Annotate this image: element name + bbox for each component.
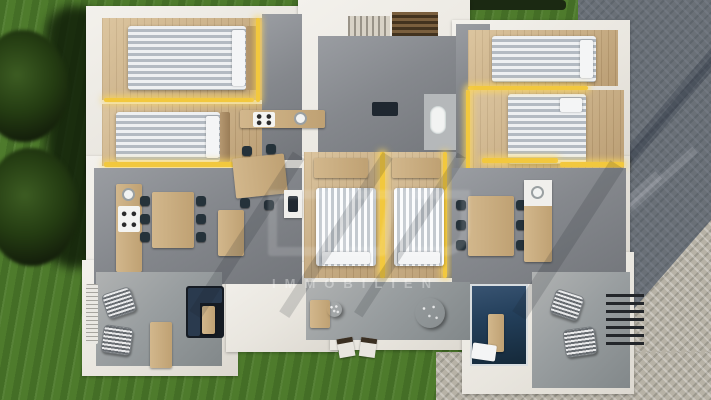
accent-wall xyxy=(104,98,254,102)
potted-plant xyxy=(327,302,342,317)
kitchen-sink xyxy=(531,186,544,199)
bed xyxy=(116,112,220,162)
bedroom-bench xyxy=(314,158,368,178)
accent-wall xyxy=(104,162,244,167)
slatted-wall xyxy=(348,16,390,38)
pergola-slat-shadow xyxy=(606,294,644,350)
kitchen-sink xyxy=(122,188,135,201)
dining-chair xyxy=(140,214,150,224)
potted-plant xyxy=(415,298,445,328)
bedroom-bench xyxy=(392,158,440,178)
pool-towel xyxy=(471,342,497,361)
louvered-shutter xyxy=(86,284,98,344)
watermark-logo-glyph xyxy=(268,190,330,256)
dining-chair xyxy=(266,144,276,154)
dining-chair xyxy=(140,196,150,206)
bed-pillows xyxy=(232,30,245,86)
bed-pillows xyxy=(580,40,593,78)
accent-wall xyxy=(468,86,588,90)
bathtub xyxy=(430,106,446,134)
wicker-lounge-chair xyxy=(100,324,134,356)
door-mat xyxy=(310,300,330,328)
hallway-floor xyxy=(262,14,302,160)
dining-table xyxy=(468,196,514,256)
watermark-text: IMMOBILIEN xyxy=(245,276,467,291)
dining-chair xyxy=(140,232,150,242)
dining-chair xyxy=(242,146,252,156)
floorplan-render: IMMOBILIEN xyxy=(0,0,711,400)
cooktop xyxy=(253,112,275,127)
wood-deck-strip xyxy=(150,322,172,368)
bed xyxy=(128,26,246,90)
dining-chair xyxy=(196,232,206,242)
watermark-logo-glyph xyxy=(336,190,398,256)
watermark-logo-glyph xyxy=(404,190,470,256)
accent-wall xyxy=(466,90,470,170)
kitchen-sink xyxy=(294,112,307,125)
watermark-logo xyxy=(268,190,470,256)
dining-chair xyxy=(196,196,206,206)
bed-pillows xyxy=(206,116,219,158)
wicker-lounge-chair xyxy=(562,326,598,358)
dining-chair xyxy=(240,198,250,208)
bed-pillows xyxy=(560,98,582,112)
cooktop xyxy=(118,206,140,232)
kitchen-appliance xyxy=(372,102,398,116)
dining-chair xyxy=(196,214,206,224)
bed-headboard xyxy=(220,112,230,162)
garden-step xyxy=(336,337,355,358)
dining-table xyxy=(152,192,194,248)
accent-wall xyxy=(482,158,558,163)
garden-step xyxy=(359,337,377,358)
accent-wall xyxy=(256,18,260,102)
